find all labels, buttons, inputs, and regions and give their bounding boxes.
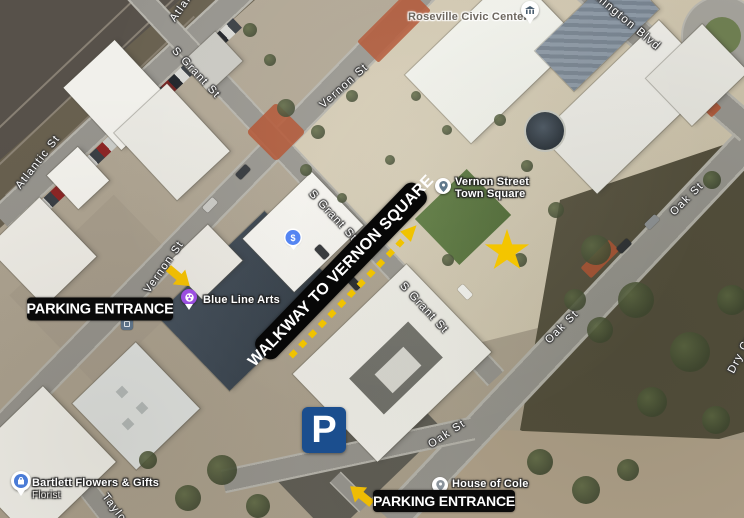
tree [175,485,201,511]
tree [572,476,600,504]
tree [300,164,312,176]
tree [385,155,395,165]
car [457,284,473,300]
tree [702,406,730,434]
poi-label-bartlett-type[interactable]: Florist [32,490,61,501]
tree [277,99,295,117]
tree [243,23,257,37]
tree [139,451,157,469]
parking-icon: P [302,407,346,453]
parking-entrance-label-bottom: PARKING ENTRANCE [373,490,515,512]
parking-entrance-label-left: PARKING ENTRANCE [27,298,173,321]
street-label-dry-creek: Dry Creek [726,315,744,376]
parking-entrance-left-text: PARKING ENTRANCE [26,301,173,317]
poi-label-house-of-cole[interactable]: House of Cole [452,478,529,490]
tree [346,90,358,102]
bartlett-pin-icon[interactable] [11,471,31,497]
tree [670,332,710,372]
tree [337,193,347,203]
price-pin-icon[interactable]: $ [286,230,301,250]
parking-glyph: P [311,409,336,452]
tree [411,91,421,101]
parking-entrance-bottom-text: PARKING ENTRANCE [373,493,515,509]
tree [442,254,454,266]
blue-line-arts-pin-icon[interactable] [181,289,197,311]
civic-center-pin-icon[interactable] [521,1,539,25]
tree [617,459,639,481]
tree [264,54,276,66]
tree [527,449,553,475]
tree [311,125,325,139]
town-square-pin-icon[interactable] [435,178,451,194]
tree [703,171,721,189]
dollar-glyph: $ [290,233,295,243]
tree [494,114,506,126]
star-icon [484,229,530,273]
tree [587,317,613,343]
civic-dome [526,112,564,150]
map-canvas[interactable]: Atlantic St Atlantic St S Grant St S Gra… [0,0,744,518]
poi-label-blue-line-arts[interactable]: Blue Line Arts [203,294,280,306]
tree [442,125,452,135]
tree [548,202,564,218]
tree [581,235,611,265]
poi-label-town-square[interactable]: Vernon Street [455,176,529,188]
poi-label-bartlett[interactable]: Bartlett Flowers & Gifts [32,477,159,489]
tree [246,494,270,518]
tree [521,160,533,172]
tree [207,455,237,485]
poi-label-town-square-line2[interactable]: Town Square [455,188,525,200]
crosswalk [357,0,431,63]
tree [637,387,667,417]
poi-label-civic-center[interactable]: Roseville Civic Center [408,11,528,23]
tree [717,285,744,315]
tree [618,282,654,318]
tree [564,289,586,311]
